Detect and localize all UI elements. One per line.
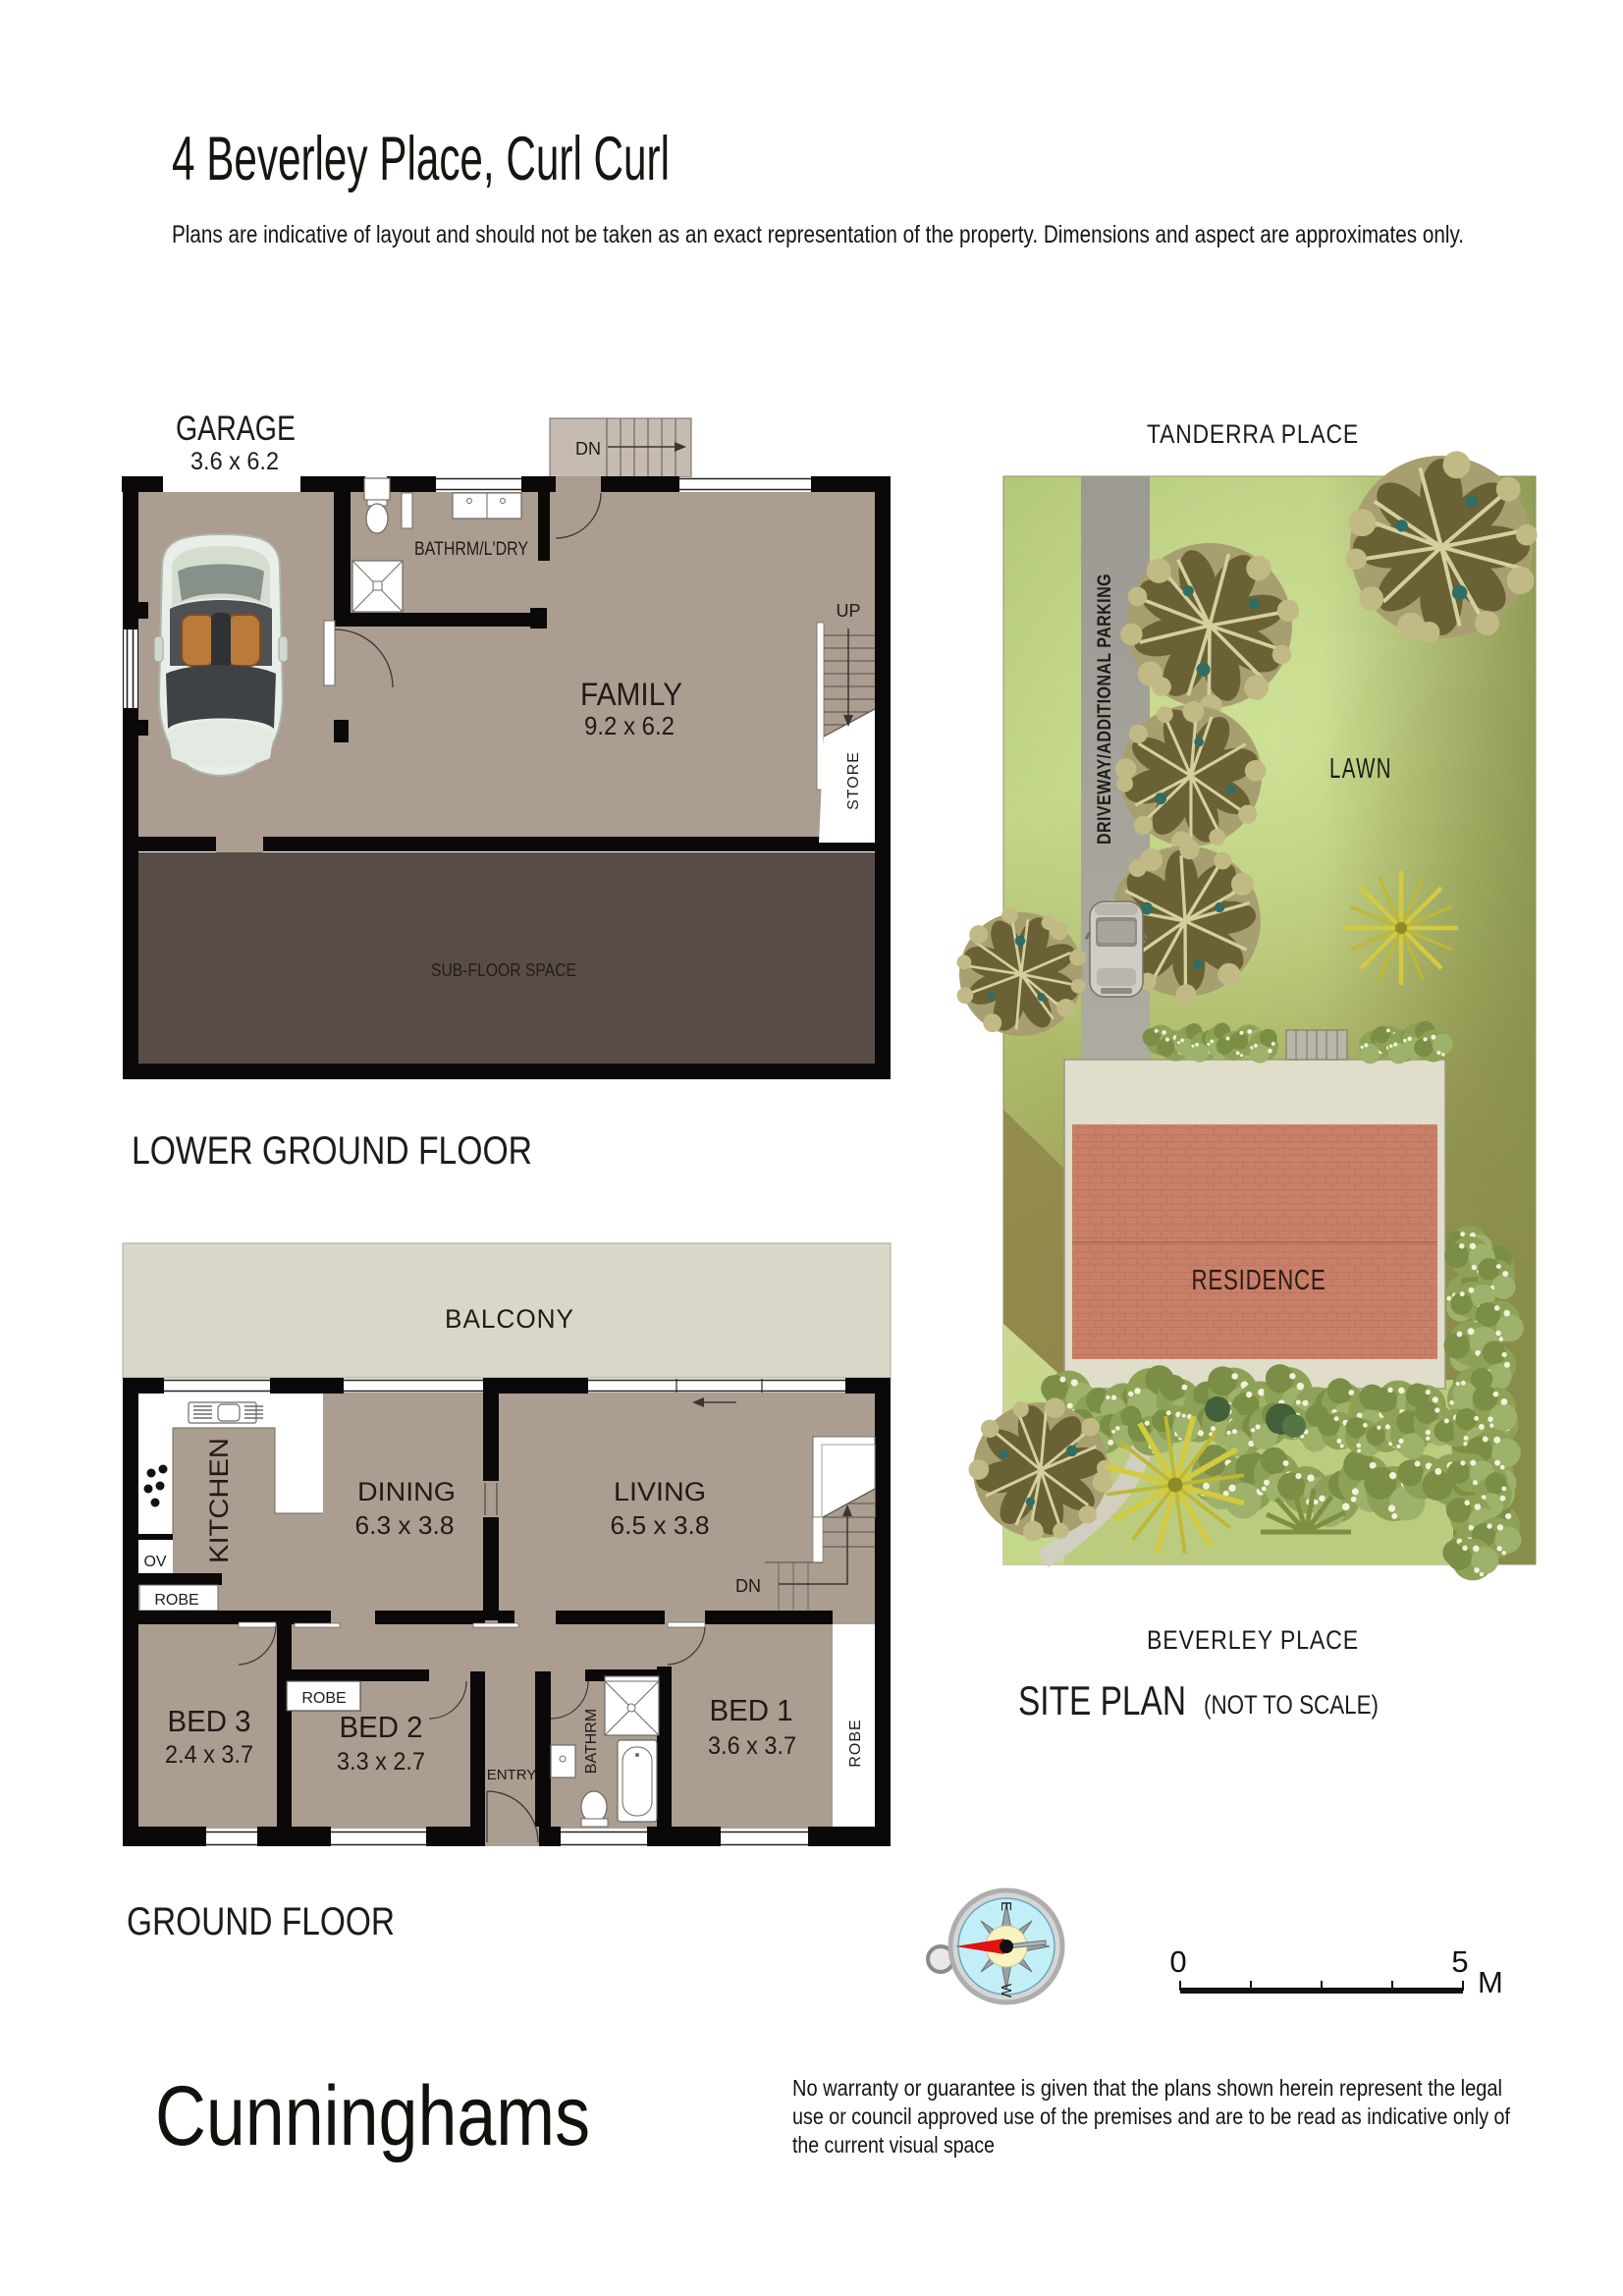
svg-text:RESIDENCE: RESIDENCE xyxy=(1192,1265,1326,1296)
svg-text:BALCONY: BALCONY xyxy=(445,1304,574,1334)
svg-text:FAMILY: FAMILY xyxy=(580,677,682,712)
svg-text:5: 5 xyxy=(1451,1944,1468,1979)
svg-text:GROUND FLOOR: GROUND FLOOR xyxy=(127,1900,395,1943)
svg-text:SUB-FLOOR SPACE: SUB-FLOOR SPACE xyxy=(431,960,576,980)
svg-text:3.3 x 2.7: 3.3 x 2.7 xyxy=(337,1748,425,1776)
svg-text:BED 3: BED 3 xyxy=(168,1704,251,1738)
svg-text:LIVING: LIVING xyxy=(614,1477,706,1506)
svg-text:ROBE: ROBE xyxy=(847,1719,864,1767)
svg-text:BED 2: BED 2 xyxy=(340,1710,423,1744)
svg-text:TANDERRA PLACE: TANDERRA PLACE xyxy=(1147,419,1359,449)
svg-text:M: M xyxy=(1478,1965,1503,1999)
svg-text:4 Beverley Place, Curl Curl: 4 Beverley Place, Curl Curl xyxy=(172,125,670,193)
svg-text:BED 1: BED 1 xyxy=(710,1693,793,1727)
svg-text:DRIVEWAY/ADDITIONAL PARKING: DRIVEWAY/ADDITIONAL PARKING xyxy=(1095,574,1115,845)
svg-text:Plans are indicative of layout: Plans are indicative of layout and shoul… xyxy=(172,221,1464,248)
svg-text:BEVERLEY PLACE: BEVERLEY PLACE xyxy=(1147,1625,1359,1655)
svg-text:Cunninghams: Cunninghams xyxy=(155,2069,590,2163)
svg-text:W: W xyxy=(998,1984,1014,1998)
svg-text:ENTRY: ENTRY xyxy=(487,1767,537,1783)
svg-text:BATHRM/L'DRY: BATHRM/L'DRY xyxy=(414,539,528,560)
svg-text:DINING: DINING xyxy=(357,1477,456,1506)
svg-text:DN: DN xyxy=(735,1576,761,1596)
svg-text:No warranty or guarantee is gi: No warranty or guarantee is given that t… xyxy=(792,2075,1502,2101)
svg-text:ROBE: ROBE xyxy=(154,1592,198,1609)
svg-text:GARAGE: GARAGE xyxy=(176,410,296,448)
svg-text:3.6 x 6.2: 3.6 x 6.2 xyxy=(190,448,279,475)
svg-text:0: 0 xyxy=(1169,1944,1186,1979)
svg-text:E: E xyxy=(998,1901,1014,1911)
svg-text:KITCHEN: KITCHEN xyxy=(204,1438,234,1563)
svg-text:STORE: STORE xyxy=(845,751,862,810)
svg-text:the current visual space: the current visual space xyxy=(792,2132,995,2158)
svg-text:OV: OV xyxy=(143,1554,166,1570)
svg-text:(NOT TO SCALE): (NOT TO SCALE) xyxy=(1204,1690,1379,1720)
svg-text:SITE PLAN: SITE PLAN xyxy=(1018,1677,1186,1723)
svg-text:6.3 x 3.8: 6.3 x 3.8 xyxy=(355,1510,455,1540)
svg-text:9.2 x 6.2: 9.2 x 6.2 xyxy=(584,711,675,740)
svg-text:LAWN: LAWN xyxy=(1329,753,1392,785)
svg-text:BATHRM: BATHRM xyxy=(583,1709,600,1774)
svg-text:LOWER GROUND FLOOR: LOWER GROUND FLOOR xyxy=(132,1129,532,1173)
svg-text:3.6 x 3.7: 3.6 x 3.7 xyxy=(708,1732,796,1760)
svg-text:DN: DN xyxy=(575,439,601,459)
svg-text:UP: UP xyxy=(836,601,860,621)
svg-text:6.5 x 3.8: 6.5 x 3.8 xyxy=(611,1510,710,1540)
svg-text:use or council approved use of: use or council approved use of the premi… xyxy=(792,2104,1511,2129)
svg-text:ROBE: ROBE xyxy=(301,1690,346,1707)
svg-text:2.4 x 3.7: 2.4 x 3.7 xyxy=(165,1741,253,1769)
